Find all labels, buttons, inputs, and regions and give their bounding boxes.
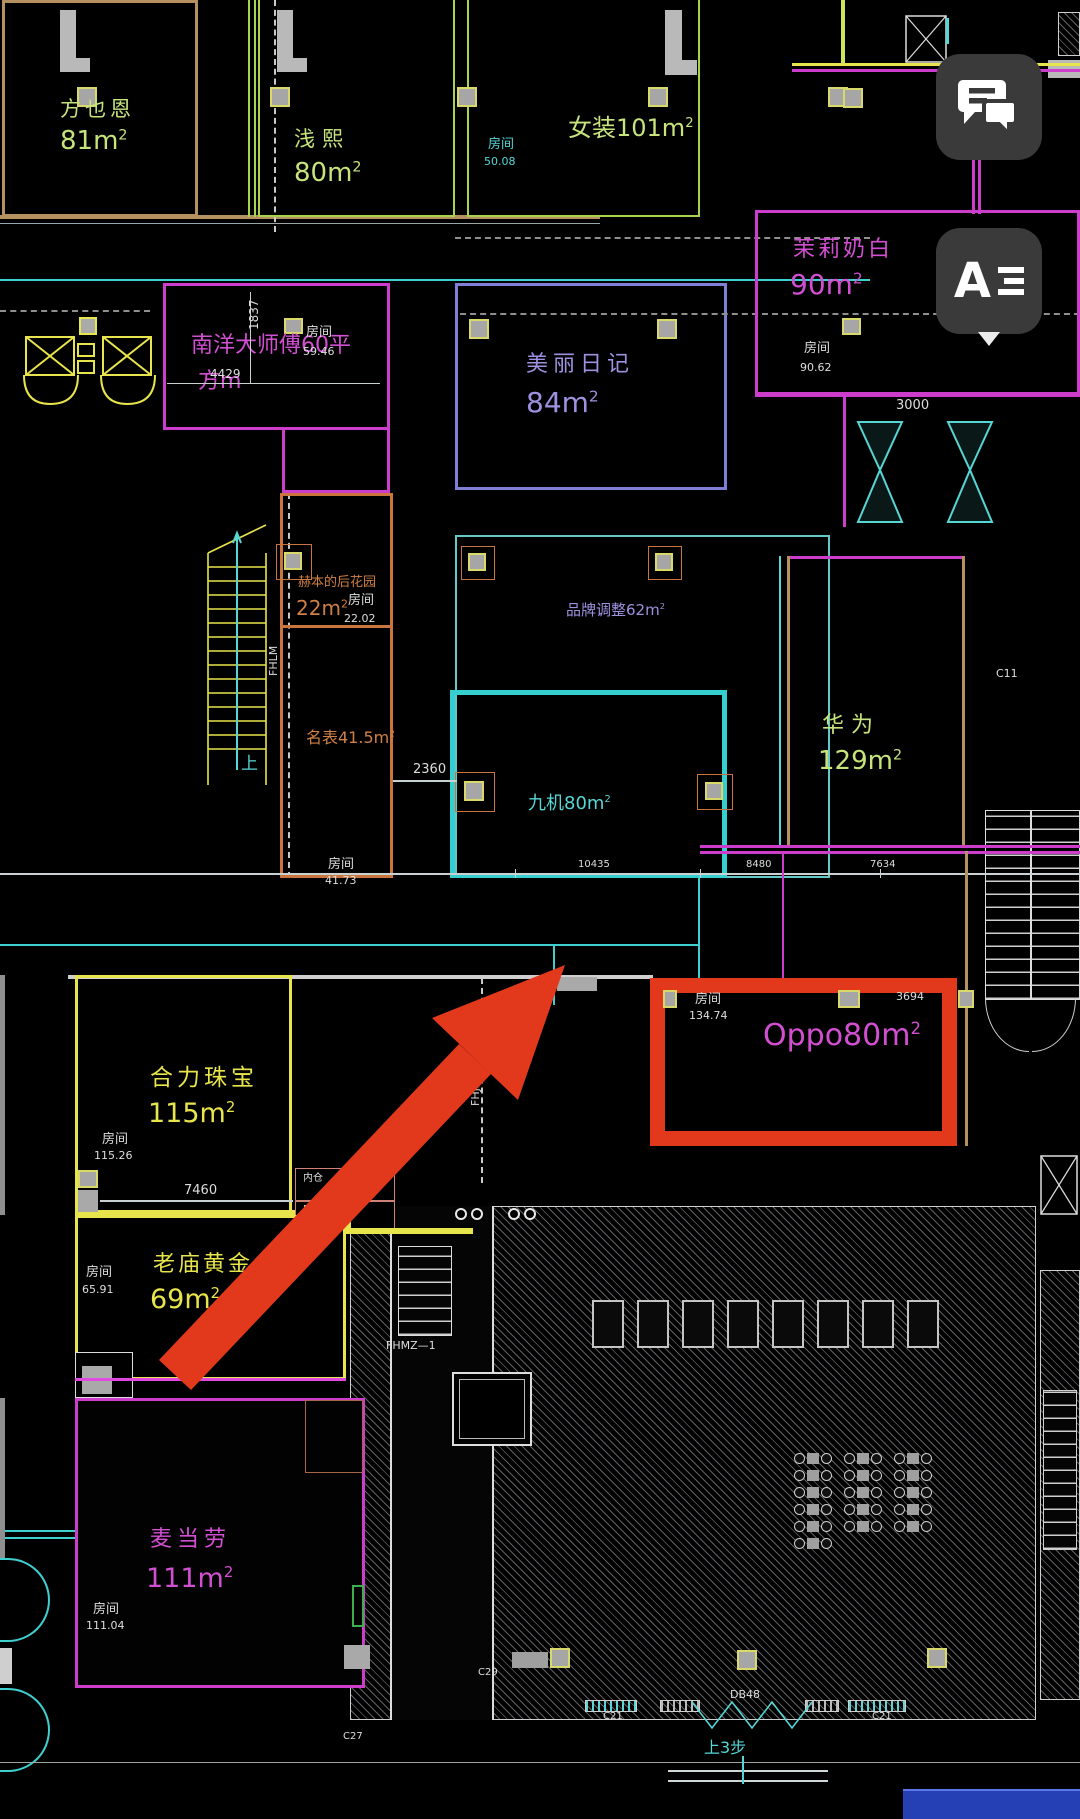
table-seats [844,1470,882,1481]
layers-icon: A [954,257,1024,305]
door-arc [985,998,1029,1052]
column [78,1170,98,1188]
column [843,88,863,108]
wall-magenta-line [75,1378,346,1381]
c21-label: C21 [872,1712,892,1723]
roomtag-6591-label: 房间 [86,1266,112,1280]
helizhubao-area-text: 115m [148,1098,226,1129]
column [657,319,677,339]
column [958,990,974,1008]
maidanglao-area-text: 111m [146,1563,224,1594]
column [697,774,733,810]
stairwell [985,810,1080,1000]
hebenhuayuan-area-label: 22m2 [296,598,348,619]
wall-fixture-l [60,58,90,72]
stairwell-right [1043,1390,1077,1550]
sup-2: 2 [226,1098,235,1116]
bottom-blue-bar [903,1789,1080,1819]
door-arc [1032,998,1076,1052]
oppo-text: Oppo80m [763,1018,910,1053]
desk [637,1300,669,1348]
table-seats [844,1504,882,1515]
dim-tick [700,869,701,878]
wall-yellow-thick [345,1228,473,1234]
desk [817,1300,849,1348]
meiliriji-area-label: 84m2 [526,388,599,417]
wall-green-line [841,0,845,64]
roomtag-4173-label: 房间 [328,858,354,872]
roomtag-11104-value: 111.04 [86,1620,125,1632]
chat-icon [957,78,1021,136]
corridor-cyan-line [0,944,700,946]
wall-fixture-l [665,60,697,75]
table-seats [794,1521,832,1532]
dim-line [100,1200,293,1202]
qianxi-name-label: 浅熙 [294,128,350,150]
stair-box [398,1246,452,1336]
column [648,87,668,107]
column-core [655,553,673,571]
column [927,1648,947,1668]
sup-2: 2 [389,730,395,740]
dim-tick [515,869,516,878]
column [455,772,495,812]
table-seats [894,1470,932,1481]
jiuji-text: 九机80m [528,793,604,814]
fangyeen-area-text: 81m [60,126,118,156]
wall-cyan-line [0,1537,75,1539]
wall-magenta-line [755,392,1080,394]
dim-line-row1 [0,223,600,224]
stairwell-rail [1030,810,1032,1000]
column [461,546,495,580]
hebenhuayuan-name-label: 赫本的后花园 [298,576,376,590]
step-line [668,1770,828,1772]
table-seats [894,1504,932,1515]
desk [772,1300,804,1348]
desk [727,1300,759,1348]
laomiao-name-label: 老庙黄金 [153,1253,253,1276]
roomtag-7786-value: 77.86 [498,1013,530,1025]
table-seats [794,1453,832,1464]
pinpaitiaozheng-text: 品牌调整62m [566,601,660,619]
sup-2: 2 [660,601,665,611]
molinaibai-name-label: 茉莉奶白 [793,238,893,261]
huawei-name-label: 华为 [822,714,880,737]
meiliriji-area-text: 84m [526,386,589,419]
room-helizhubao [75,975,292,1215]
table-seats [894,1453,932,1464]
roomtag-11104-label: 房间 [93,1603,119,1617]
table-seats [794,1538,832,1549]
column [457,87,477,107]
room-huawei-right [962,556,965,847]
neicang-label: 内仓 [355,1174,375,1185]
dim-7460: 7460 [184,1184,217,1198]
huawei-area-text: 129m [818,746,893,776]
dim-line [250,292,251,383]
c11-label: C11 [996,668,1018,680]
helizhubao-area-label: 115m2 [148,1100,235,1128]
room-mingbiao [280,628,393,878]
room-huawei-top [787,556,965,559]
corridor-cyan-line [0,279,870,281]
wall-green-stub [352,1585,364,1627]
molinaibai-area-label: 90m2 [790,270,863,299]
desk-row [592,1300,952,1348]
wall-green [248,0,250,217]
column [842,318,861,335]
sup-2: 2 [589,388,599,406]
layers-button[interactable]: A [936,228,1042,334]
seating-cluster [788,1450,968,1552]
steps-up-label: 上3步 [704,1740,746,1757]
nvzhuang-text: 女装101m [568,114,685,142]
wall-cyan-stub [946,18,949,44]
layers-icon-letter: A [954,257,991,305]
room-huawei-left [787,556,790,847]
roomtag-5946-label: 房间 [306,326,332,340]
roomtag-11526-value: 115.26 [94,1150,133,1162]
door-arc [0,1688,50,1772]
laomiao-area-text: 69m [150,1284,211,1315]
qianxi-area-text: 80m [294,158,352,188]
roomtag-13474-label: 房间 [695,993,721,1007]
wall-grey-edge [0,975,5,1215]
wall-fixture-l [60,10,76,60]
roomtag-2202-value: 22.02 [344,613,376,625]
mingbiao-text: 名表41.5m [306,728,389,747]
column-core [468,553,486,571]
dim-line [167,383,380,384]
maidanglao-name-label: 麦当劳 [150,1528,231,1551]
wall-magenta-stub [782,851,784,980]
dim-line-main [0,873,1080,875]
qianxi-area-label: 80m2 [294,160,362,187]
wall-grey-block [557,977,597,991]
table-seats [794,1487,832,1498]
dim-line [393,780,457,782]
laomiao-area-label: 69m2 [150,1286,220,1314]
wall-grey-edge [0,1398,5,1558]
desk [862,1300,894,1348]
c29-label: C29 [478,1668,498,1679]
cad-floorplan-canvas[interactable]: 方也恩 81m2 浅熙 80m2 房间 50.08 女装101m2 [0,0,1080,1819]
door-symbol [455,1208,467,1220]
table-seats [794,1470,832,1481]
molinaibai-area-text: 90m [790,268,853,301]
escalator-symbol [18,292,168,407]
sup-2: 2 [893,747,902,763]
room-maidanglao-inner [305,1400,363,1473]
roomtag-13474-value: 134.74 [689,1010,728,1022]
column [284,318,303,334]
door-arc [0,1558,50,1642]
neicang-label: 内仓 [303,1174,323,1185]
meiliriji-name-label: 美丽日记 [526,353,634,376]
roomtag-9062-label: 房间 [804,342,830,356]
helizhubao-name-label: 合力珠宝 [150,1066,258,1090]
jiuji-label: 九机80m2 [528,795,611,814]
table-seats [844,1521,882,1532]
comments-button[interactable] [936,54,1042,160]
wall-grey-block [344,1645,370,1669]
hebenhuayuan-area-text: 22m [296,596,341,620]
wall-grey-block [78,1190,98,1212]
desk [907,1300,939,1348]
window-x-box [905,15,947,63]
dim-4429: 4429 [210,368,241,381]
roomtag-7786-label: 房间 [501,995,527,1009]
escalator-symbol [852,418,1022,528]
elevator-shaft-inner [459,1379,525,1439]
pinpaitiaozheng-label: 品牌调整62m2 [566,602,665,619]
nvzhuang-label: 女装101m2 [568,116,694,141]
door-symbol [508,1208,520,1220]
desk [682,1300,714,1348]
wall-fixture-l [665,10,682,62]
wall-fixture-l [277,10,293,60]
db48-label: DB48 [730,1689,760,1701]
wall-fixture-l [277,58,307,72]
sup-2: 2 [853,270,863,288]
sup-2: 2 [341,597,348,610]
column [663,990,677,1008]
column-core [464,781,484,801]
sup-2: 2 [604,794,610,805]
wall-grey-block [512,1652,548,1668]
wall-magenta-line [700,845,1080,848]
door-symbol [471,1208,483,1220]
wall-magenta-stub [843,397,846,527]
neicang-label: 内仓 [303,1205,323,1216]
sup-2: 2 [211,1284,220,1302]
c27-label: C27 [343,1732,363,1743]
roomtag-6591-value: 65.91 [82,1284,114,1296]
table-seats [894,1487,932,1498]
fhmz-label: FHMZ—1 [386,1340,436,1352]
fangyeen-area-label: 81m2 [60,128,128,155]
column [737,1650,757,1670]
stair-up-label: 上 [241,756,258,774]
roomtag-11526-label: 房间 [102,1133,128,1147]
table-seats [844,1453,882,1464]
floor-edge-line [0,1762,1080,1763]
roomtag-5946-value: 59.46 [303,346,335,358]
roomtag-9062-value: 90.62 [800,362,832,374]
step-line [668,1780,828,1782]
chevron-down-icon[interactable] [978,332,1000,346]
desk [592,1300,624,1348]
roomtag-5008-label: 房间 [488,138,514,152]
sup-2: 2 [685,116,693,131]
maidanglao-area-label: 111m2 [146,1565,233,1593]
layers-icon-bars [998,265,1024,298]
table-seats [894,1521,932,1532]
column [270,87,290,107]
wall-green [254,0,256,217]
sup-2: 2 [118,127,127,143]
roomtag-2202-label: 房间 [348,594,374,608]
column [469,319,489,339]
column-core [284,552,302,570]
dim-10435: 10435 [578,860,610,871]
sup-2: 2 [910,1019,921,1038]
fhlm-label: FHLM [268,646,280,676]
wall-grey-block [0,1648,12,1684]
mingbiao-label: 名表41.5m2 [306,730,395,747]
oppo-label: Oppo80m2 [763,1020,921,1052]
zigzag-break-line [690,1698,820,1732]
table-seats [844,1487,882,1498]
column-core [705,782,723,800]
wall-cyan-line [0,1530,75,1532]
room-nanyang-ext [282,428,390,493]
dim-2360: 2360 [413,763,446,777]
wall-cyan-stub [698,875,700,980]
dim-7634: 7634 [870,860,895,871]
roomtag-5008-value: 50.08 [484,156,516,168]
dim-3000: 3000 [896,399,929,413]
wall-magenta-line [700,851,1080,854]
column [648,546,682,580]
wall-hatched-block [1058,12,1080,56]
dim-8480: 8480 [746,860,771,871]
huawei-area-label: 129m2 [818,748,902,775]
sup-2: 2 [224,1563,233,1581]
column [838,990,860,1008]
column [550,1648,570,1668]
roomtag-4173-value: 41.73 [325,875,357,887]
step-tick [742,1756,744,1784]
fangyeen-name-label: 方也恩 [60,98,135,120]
wall-cyan-line [779,556,781,847]
fhjm-label: FHJM [470,1079,482,1106]
sup-2: 2 [352,159,361,175]
table-seats [794,1504,832,1515]
dim-3694: 3694 [896,991,924,1003]
c21-label: C21 [603,1712,623,1723]
door-symbol [524,1208,536,1220]
window-x-box [1040,1155,1078,1215]
